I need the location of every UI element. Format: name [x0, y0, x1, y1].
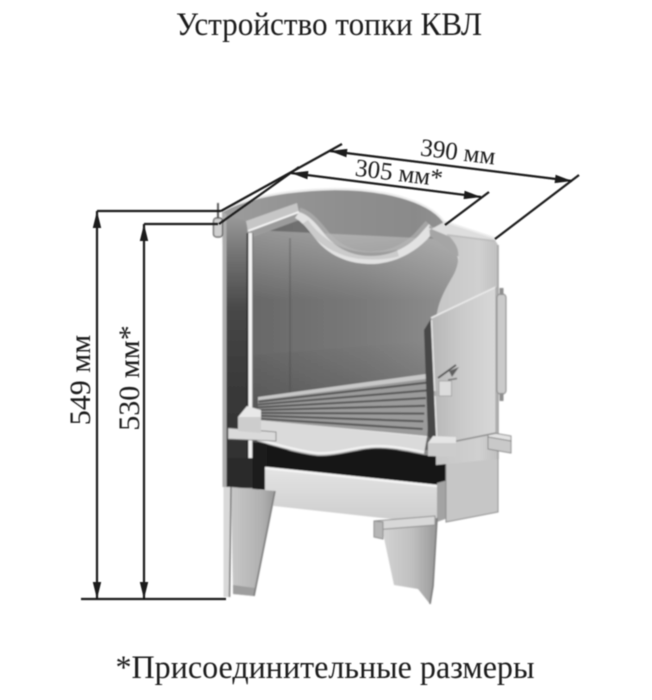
svg-text:Устройство топки КВЛ: Устройство топки КВЛ: [176, 7, 482, 43]
svg-text:549 мм: 549 мм: [64, 335, 97, 425]
svg-text:530 мм*: 530 мм*: [113, 325, 146, 430]
svg-text:*Присоединительные размеры: *Присоединительные размеры: [116, 650, 535, 686]
